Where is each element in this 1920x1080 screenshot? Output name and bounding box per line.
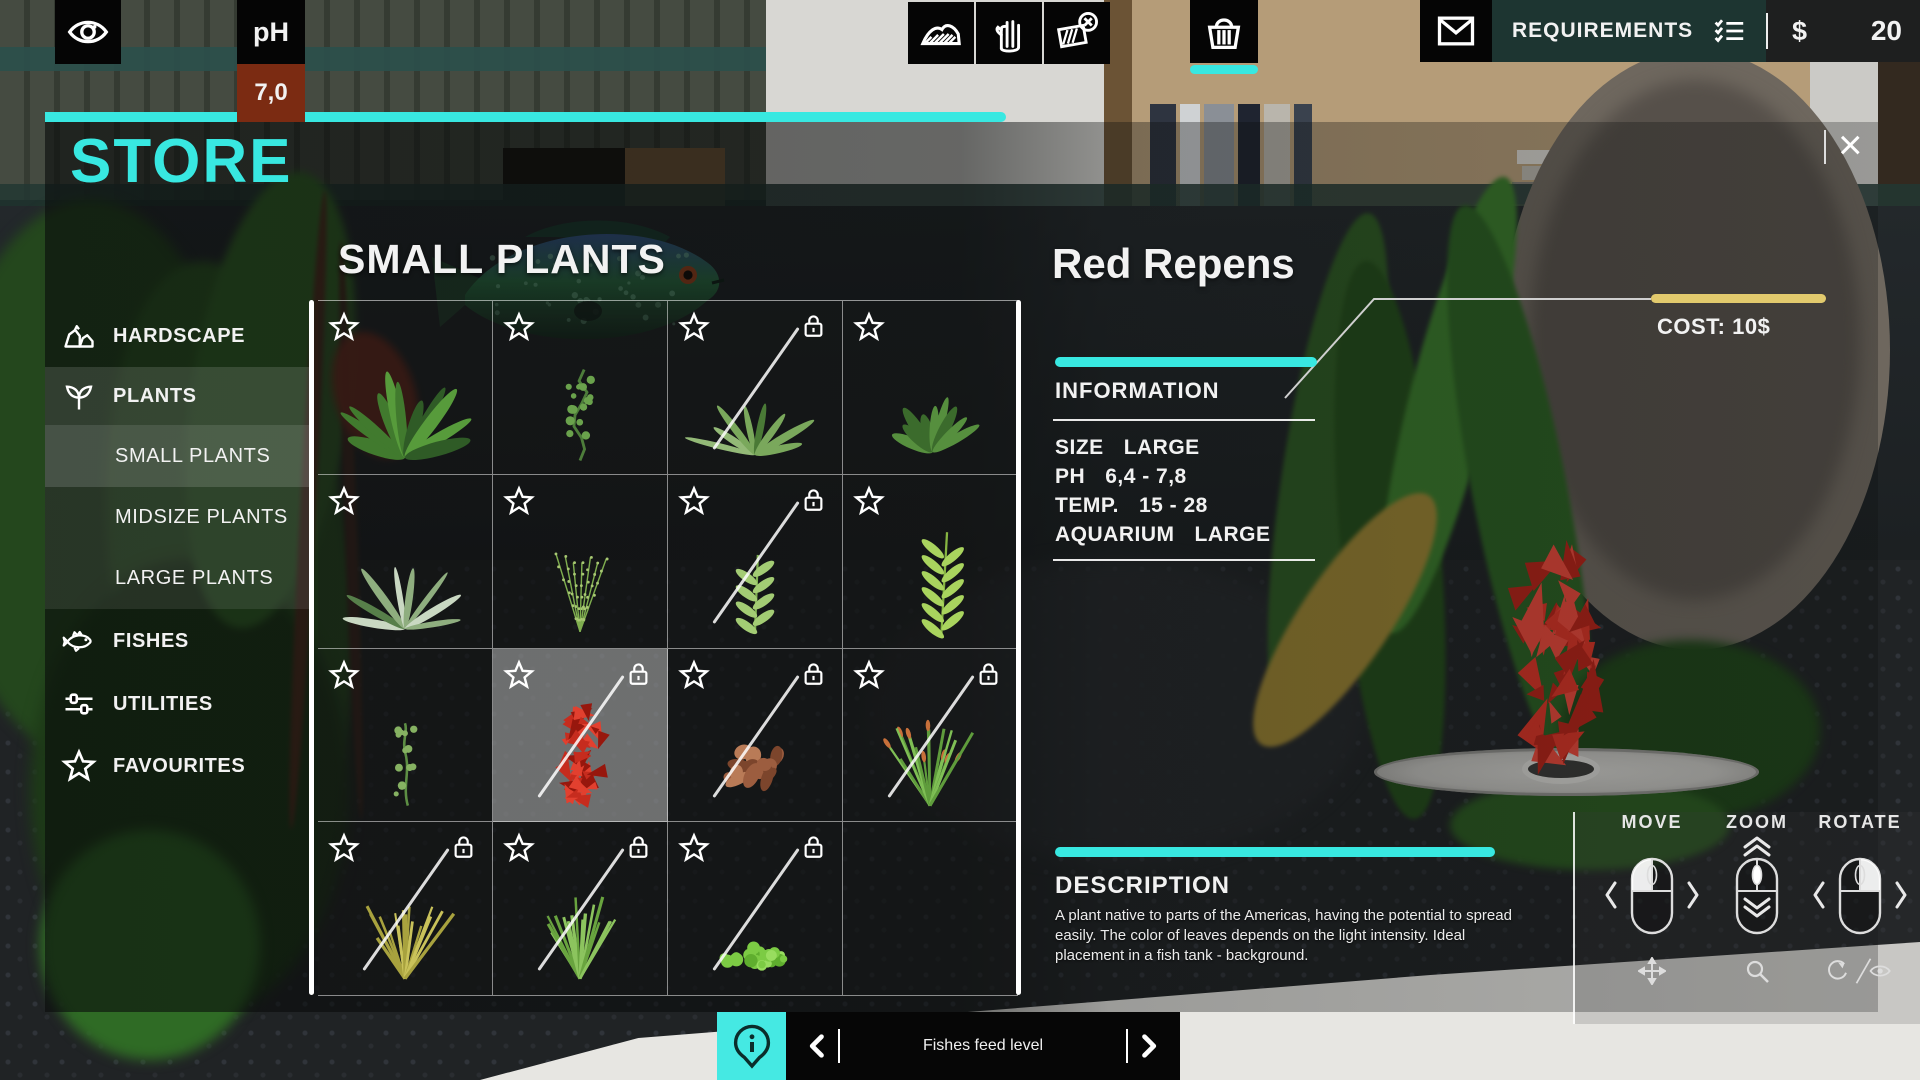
info-row-size: SIZELARGE [1055, 436, 1271, 465]
control-label: ROTATE [1805, 812, 1915, 833]
plant-cell-grass_orange[interactable] [843, 649, 1018, 823]
plant-grid [318, 300, 1018, 996]
sidebar-item-label: UTILITIES [113, 693, 213, 716]
cost-bar [1651, 294, 1826, 303]
sidebar-item-label: HARDSCAPE [113, 325, 245, 348]
ph-value: 7,0 [254, 79, 287, 107]
control-zoom: ZOOM [1702, 812, 1812, 985]
plant-cell-rosette[interactable] [668, 301, 843, 475]
info-accent-bar [1055, 357, 1317, 367]
requirements-label: REQUIREMENTS [1512, 19, 1693, 43]
sidebar-item-label: MIDSIZE PLANTS [115, 506, 288, 529]
description-text: A plant native to parts of the Americas,… [1055, 906, 1530, 966]
sidebar-item-large-plants[interactable]: LARGE PLANTS [45, 547, 312, 609]
lock-icon [799, 311, 828, 340]
rocks-icon [61, 318, 97, 354]
basket-active-indicator [1190, 65, 1258, 74]
sidebar-item-label: PLANTS [113, 385, 197, 408]
rotate-eye-icon [1825, 957, 1895, 985]
sidebar-item-label: FISHES [113, 630, 189, 653]
lock-icon [799, 659, 828, 688]
move-cross-icon [1638, 957, 1666, 985]
sprout-icon [61, 378, 97, 414]
mail-button[interactable] [1420, 0, 1492, 62]
divider [1053, 419, 1315, 421]
info-pin-button[interactable] [717, 1012, 786, 1080]
empty-cell [843, 822, 1018, 996]
sidebar-item-label: LARGE PLANTS [115, 567, 273, 590]
info-value: LARGE [1195, 523, 1271, 546]
info-value: 15 - 28 [1139, 494, 1208, 517]
checklist-icon [1711, 12, 1748, 50]
lock-icon [449, 832, 478, 861]
control-label: MOVE [1597, 812, 1707, 833]
sidebar-item-label: FAVOURITES [113, 755, 245, 778]
plant-cell-rosette[interactable] [318, 475, 493, 649]
information-rows: SIZELARGEPH6,4 - 7,8TEMP.15 - 28AQUARIUM… [1055, 436, 1271, 552]
info-value: 6,4 - 7,8 [1105, 465, 1187, 488]
sidebar-item-favourites[interactable]: FAVOURITES [45, 735, 312, 797]
visibility-button[interactable] [55, 0, 121, 64]
information-title: INFORMATION [1055, 378, 1220, 404]
grid-scrollbar-right[interactable] [1016, 300, 1021, 995]
plant-cell-red[interactable] [493, 649, 668, 823]
sidebar-item-small-plants[interactable]: SMALL PLANTS [45, 425, 312, 487]
cost-leader-line [1280, 290, 1660, 405]
tool-bar [908, 2, 1110, 64]
currency-symbol: $ [1792, 16, 1807, 47]
store-sidebar: HARDSCAPEPLANTSSMALL PLANTSMIDSIZE PLANT… [45, 305, 312, 797]
plant-cell-stem_tall[interactable] [843, 475, 1018, 649]
info-value: LARGE [1124, 436, 1200, 459]
plant-cell-sparse[interactable] [493, 475, 668, 649]
info-row-temp: TEMP.15 - 28 [1055, 494, 1271, 523]
basket-icon [1201, 9, 1247, 55]
plant-cell-grass[interactable] [318, 822, 493, 996]
sidebar-item-midsize-plants[interactable]: MIDSIZE PLANTS [45, 487, 312, 547]
plant-cell-vine_sm[interactable] [318, 649, 493, 823]
scene-waterline [0, 47, 866, 71]
envelope-icon [1434, 9, 1478, 53]
divider [1766, 13, 1768, 49]
magnifier-icon [1743, 957, 1771, 985]
feed-level-bar [45, 112, 1006, 122]
mouse-left-icon [1604, 835, 1700, 953]
sliders-icon [61, 686, 97, 722]
info-label: TEMP. [1055, 494, 1119, 517]
fish-icon [61, 623, 97, 659]
game-screen: { "topbar": { "eye_icon": "eye-icon", "p… [0, 0, 1920, 1080]
money-display: $ 20 [1766, 0, 1920, 62]
category-title: SMALL PLANTS [338, 236, 666, 283]
info-label: SIZE [1055, 436, 1104, 459]
control-label: ZOOM [1702, 812, 1812, 833]
store-title: STORE [70, 126, 292, 197]
cost-label: COST: 10$ [1657, 314, 1770, 340]
plant-cell-bushy[interactable] [318, 301, 493, 475]
plant-cell-copper[interactable] [668, 649, 843, 823]
hand-icon [986, 10, 1032, 56]
close-store-button[interactable]: × [1838, 122, 1863, 168]
ph-value-badge: 7,0 [237, 64, 305, 122]
mouse-right-icon [1812, 835, 1908, 953]
hand-tool-button[interactable] [976, 2, 1042, 64]
eye-icon [66, 10, 110, 54]
substrate-tool-button[interactable] [908, 2, 974, 64]
description-accent-bar [1055, 847, 1495, 857]
requirements-button[interactable]: REQUIREMENTS [1492, 0, 1768, 62]
status-label: Fishes feed level [786, 1037, 1180, 1055]
divider [1053, 559, 1315, 561]
mouse-controls-panel: MOVEZOOMROTATE [1575, 812, 1920, 1024]
star-icon [61, 748, 97, 784]
lock-icon [624, 659, 653, 688]
store-basket-button[interactable] [1190, 0, 1258, 63]
ph-button[interactable]: pH [237, 0, 305, 64]
plant-cell-stem[interactable] [668, 475, 843, 649]
plant-cell-grass[interactable] [493, 822, 668, 996]
substrate-icon [918, 10, 964, 56]
mouse-wheel-icon [1709, 835, 1805, 953]
control-move: MOVE [1597, 812, 1707, 985]
lock-icon [799, 832, 828, 861]
status-cycler: Fishes feed level [786, 1012, 1180, 1080]
eraser-tool-button[interactable] [1044, 2, 1110, 64]
lock-icon [799, 485, 828, 514]
plant-cell-vine[interactable] [493, 301, 668, 475]
lock-icon [624, 832, 653, 861]
plant-cell-bushy_sm[interactable] [843, 301, 1018, 475]
plant-cell-cover[interactable] [668, 822, 843, 996]
info-row-ph: PH6,4 - 7,8 [1055, 465, 1271, 494]
eraser-icon [1054, 10, 1100, 56]
sidebar-item-plants[interactable]: PLANTS [45, 367, 312, 425]
grid-scrollbar-left[interactable] [309, 300, 314, 995]
sidebar-item-utilities[interactable]: UTILITIES [45, 673, 312, 735]
info-row-aquarium: AQUARIUMLARGE [1055, 523, 1271, 552]
info-label: AQUARIUM [1055, 523, 1175, 546]
selected-item-name: Red Repens [1052, 240, 1295, 288]
divider [1824, 130, 1826, 164]
info-pin-icon [728, 1022, 776, 1070]
sidebar-item-fishes[interactable]: FISHES [45, 609, 312, 673]
info-label: PH [1055, 465, 1085, 488]
chevron-right-icon[interactable] [1134, 1032, 1162, 1060]
lock-icon [974, 659, 1003, 688]
divider [1126, 1029, 1128, 1063]
description-title: DESCRIPTION [1055, 872, 1230, 900]
control-rotate: ROTATE [1805, 812, 1915, 985]
money-amount: 20 [1871, 15, 1902, 47]
sidebar-item-hardscape[interactable]: HARDSCAPE [45, 305, 312, 367]
sidebar-item-label: SMALL PLANTS [115, 445, 270, 468]
ph-label: pH [253, 17, 289, 48]
